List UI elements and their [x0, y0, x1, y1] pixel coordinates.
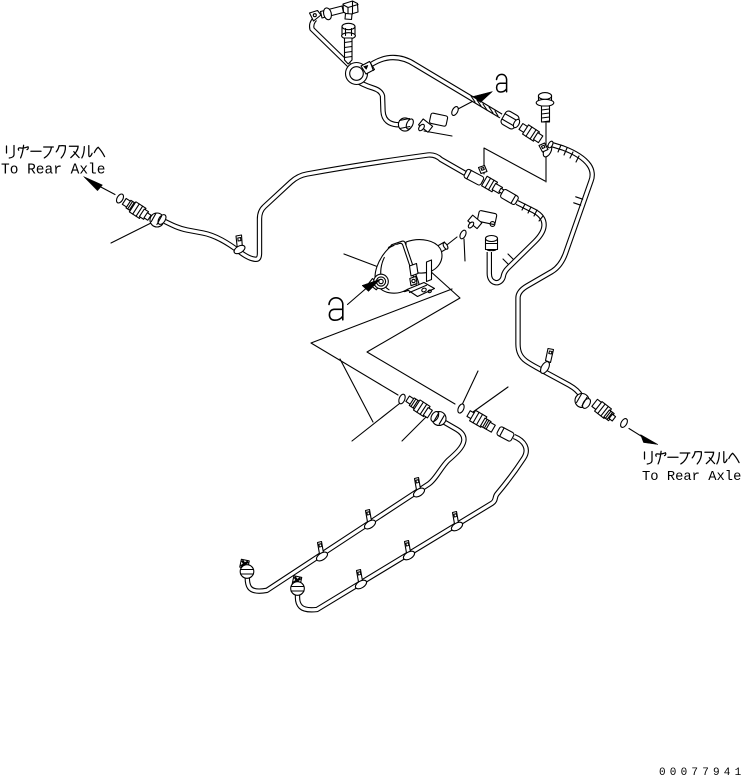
svg-text:To Rear Axle: To Rear Axle [1, 163, 105, 179]
svg-text:To Rear Axle: To Rear Axle [642, 469, 741, 485]
svg-text:00077941: 00077941 [659, 767, 743, 776]
